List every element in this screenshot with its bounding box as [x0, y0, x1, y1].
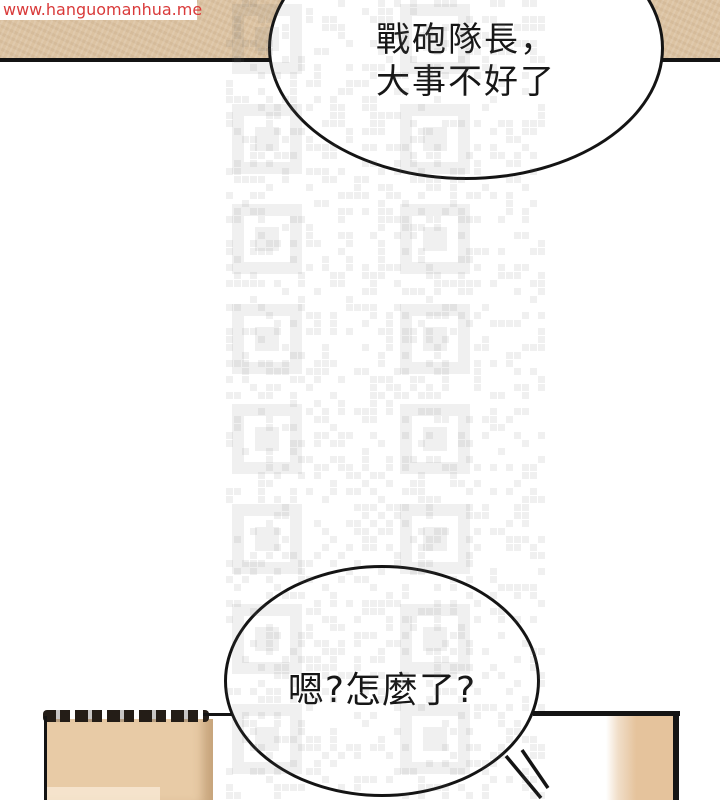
comic-page: www.hanguomanhua.me 戰砲隊長， 大事不好了 嗯?怎麼了?: [0, 0, 720, 800]
speech-bubble-top-text: 戰砲隊長， 大事不好了: [271, 19, 661, 103]
speech-bubble-bottom-text: 嗯?怎麼了?: [227, 671, 537, 711]
site-watermark-text: www.hanguomanhua.me: [3, 0, 202, 20]
wall-highlight: [45, 787, 160, 800]
dark-bead-strip: [43, 710, 209, 722]
speech-bubble-top: 戰砲隊長， 大事不好了: [268, 0, 664, 180]
panel-border-right: [673, 711, 679, 800]
speech-line-1: 戰砲隊長，: [376, 20, 556, 60]
speech-bubble-tail: [492, 748, 556, 800]
panel-border-left: [44, 716, 47, 800]
panel-border-top-right: [533, 711, 680, 716]
speech-line-2: 大事不好了: [376, 62, 556, 102]
bottom-left-panel-art: [45, 719, 213, 800]
bottom-right-panel-art: [606, 716, 673, 800]
